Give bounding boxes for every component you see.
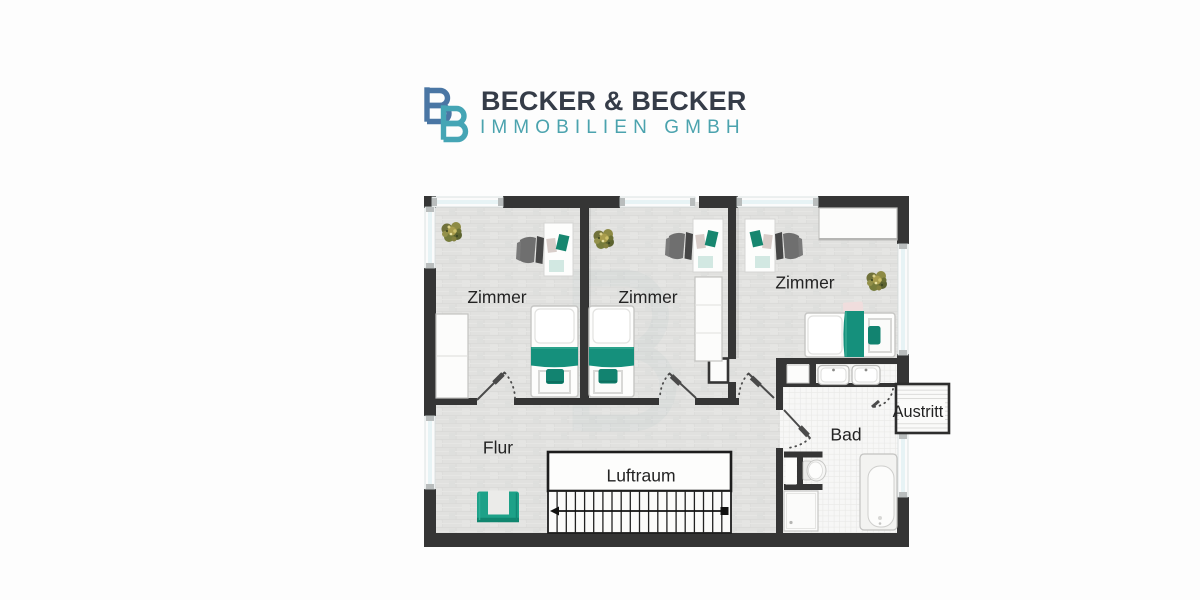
svg-text:Bad: Bad <box>830 425 861 445</box>
svg-text:Austritt: Austritt <box>893 403 944 421</box>
svg-text:Flur: Flur <box>483 438 513 458</box>
svg-text:Luftraum: Luftraum <box>606 466 675 486</box>
svg-text:Zimmer: Zimmer <box>775 273 834 293</box>
svg-text:Zimmer: Zimmer <box>467 287 526 307</box>
svg-text:Zimmer: Zimmer <box>618 287 677 307</box>
